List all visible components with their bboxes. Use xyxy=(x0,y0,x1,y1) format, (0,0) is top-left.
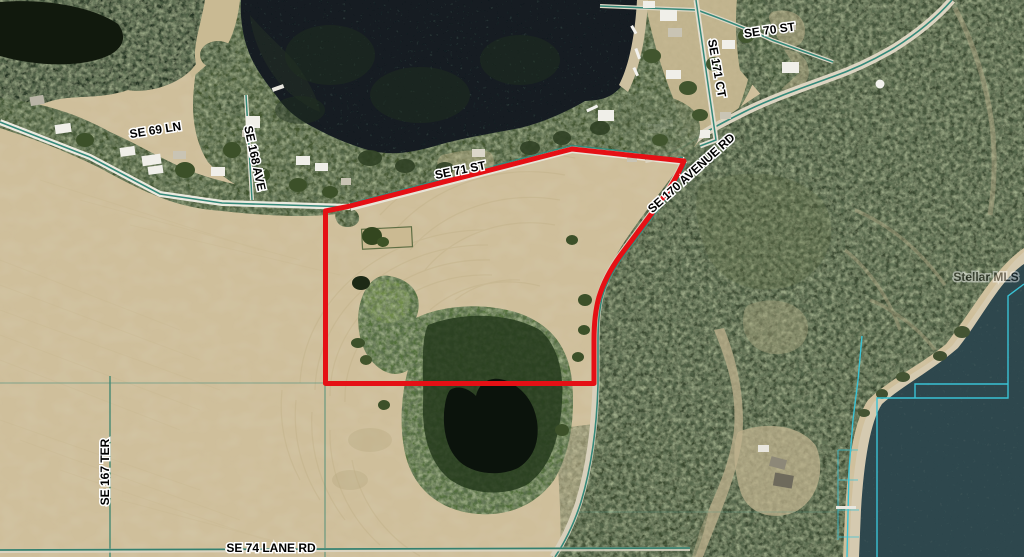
svg-text:Stellar MLS: Stellar MLS xyxy=(953,270,1018,284)
svg-text:SE 167 TER: SE 167 TER xyxy=(98,438,112,505)
svg-text:SE 74 LANE RD: SE 74 LANE RD xyxy=(226,541,316,555)
